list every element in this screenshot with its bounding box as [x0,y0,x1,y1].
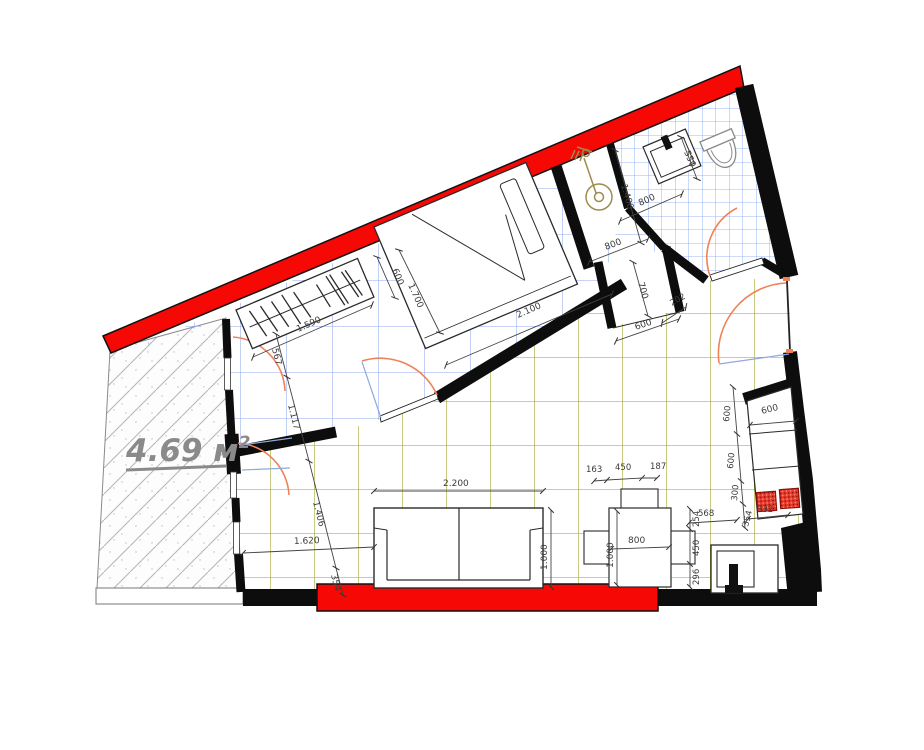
dim-sofa-offset: 1.620 [294,536,320,547]
sofa [374,508,543,588]
floor-plan-page: 567 1.117 1.406 354 1.590 600 1.700 2.10… [0,0,924,750]
dim-cooktop-width: 332 [757,505,773,515]
dim-kchain-2: 600 [726,452,737,469]
dim-table-width: 800 [628,536,645,546]
dim-table-163: 163 [586,465,602,475]
dim-table-296: 296 [692,569,702,585]
chair [621,489,658,509]
kitchen-sink [711,545,778,593]
floor-plan-svg: 567 1.117 1.406 354 1.590 600 1.700 2.10… [0,0,924,750]
balcony-edge-strip [96,588,243,604]
cooktop-burner [779,488,799,508]
dim-table-depth: 1.000 [606,542,616,568]
balcony-area-label: 4.69 м2 [125,433,250,470]
dim-table-450r: 450 [692,540,702,556]
area-value: 4.69 м2 [125,433,250,469]
dim-sofa-depth: 1.000 [540,544,550,570]
dim-sink-width: 568 [698,509,714,519]
dim-sofa-length: 2.200 [443,479,469,489]
dim-kchain-1: 600 [722,405,733,422]
dim-kchain-3: 300 [730,484,741,501]
dim-table-187: 187 [650,462,666,472]
dim-table-450t: 450 [615,463,631,473]
